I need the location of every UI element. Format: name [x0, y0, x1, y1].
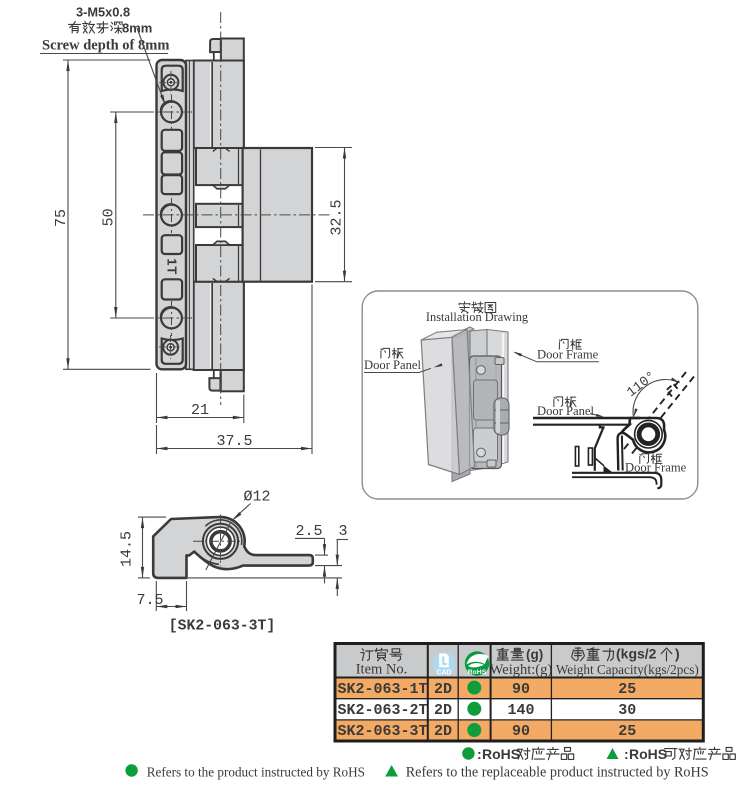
svg-text:2D: 2D: [434, 702, 452, 719]
svg-text:Door Frame: Door Frame: [625, 460, 687, 474]
svg-text:RoHS: RoHS: [482, 746, 520, 762]
svg-text:(g): (g): [526, 647, 543, 662]
svg-text:Door Panel: Door Panel: [364, 358, 422, 372]
svg-text:30: 30: [618, 702, 636, 719]
svg-text:(kgs/2: (kgs/2: [616, 646, 657, 662]
svg-text:32.5: 32.5: [329, 199, 346, 235]
svg-text:Screw depth of 8mm: Screw depth of 8mm: [42, 38, 169, 54]
svg-text:25: 25: [618, 723, 636, 740]
svg-text:Refers to the replaceable prod: Refers to the replaceable product instru…: [406, 765, 709, 781]
svg-text:2D: 2D: [434, 681, 452, 698]
svg-text:SK2-063-3T: SK2-063-3T: [338, 723, 428, 740]
svg-text:2D: 2D: [434, 723, 452, 740]
svg-text:Door Panel: Door Panel: [537, 404, 595, 418]
svg-text::: :: [624, 746, 629, 762]
svg-text:): ): [675, 646, 680, 662]
svg-text:Item No.: Item No.: [356, 662, 408, 678]
svg-text:RoHS: RoHS: [468, 669, 487, 676]
svg-text:2.5: 2.5: [295, 523, 322, 540]
svg-text:Refers to the product instruct: Refers to the product instructed by RoHS: [147, 765, 365, 780]
svg-text:90: 90: [512, 681, 530, 698]
svg-text:[SK2-063-3T]: [SK2-063-3T]: [169, 619, 276, 635]
svg-text:1T: 1T: [165, 258, 180, 275]
svg-text:75: 75: [53, 209, 70, 227]
svg-text:3: 3: [338, 523, 347, 540]
svg-text:SK2-063-1T: SK2-063-1T: [338, 681, 428, 698]
svg-text:21: 21: [191, 402, 209, 419]
svg-text:140: 140: [507, 702, 534, 719]
svg-text:Installation Drawing: Installation Drawing: [426, 310, 528, 324]
svg-text:Door Frame: Door Frame: [537, 348, 599, 362]
svg-text:Ø12: Ø12: [243, 489, 270, 506]
svg-text:14.5: 14.5: [119, 531, 136, 567]
svg-text:25: 25: [618, 681, 636, 698]
svg-text:7.5: 7.5: [136, 592, 163, 609]
svg-text:3-M5x0.8: 3-M5x0.8: [76, 5, 130, 20]
svg-text:Weight:(g): Weight:(g): [490, 662, 553, 678]
svg-text::: :: [477, 746, 482, 762]
svg-text:90: 90: [512, 723, 530, 740]
svg-text:CAD: CAD: [436, 670, 451, 677]
svg-text:RoHS: RoHS: [629, 746, 667, 762]
svg-text:37.5: 37.5: [216, 433, 252, 450]
svg-text:Weight Capacity(kgs/2pcs): Weight Capacity(kgs/2pcs): [556, 662, 699, 677]
svg-text:50: 50: [101, 208, 118, 226]
svg-text:SK2-063-2T: SK2-063-2T: [338, 702, 428, 719]
